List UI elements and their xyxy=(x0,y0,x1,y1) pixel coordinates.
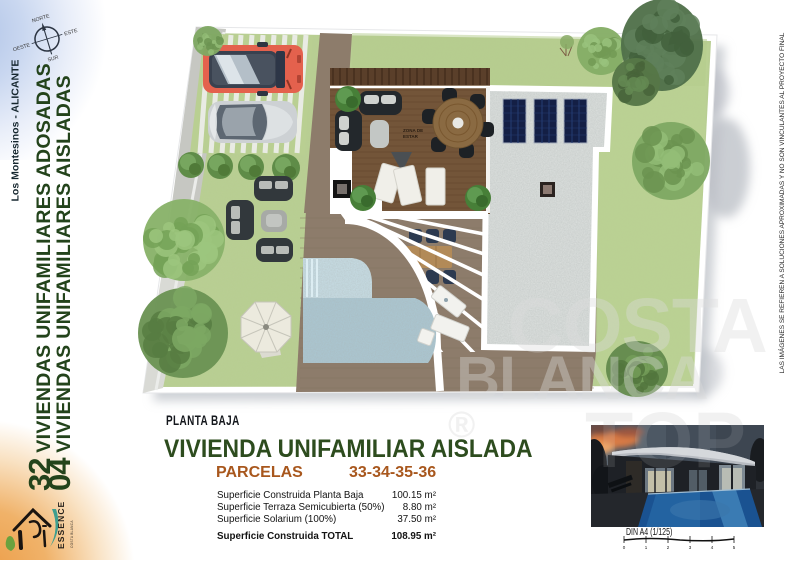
svg-text:ZONA DE: ZONA DE xyxy=(403,128,423,133)
svg-text:0: 0 xyxy=(623,545,626,550)
svg-text:NORTE: NORTE xyxy=(31,13,51,24)
svg-text:1: 1 xyxy=(645,545,648,550)
svg-text:ESSENCE: ESSENCE xyxy=(56,501,66,549)
svg-text:5: 5 xyxy=(733,545,736,550)
svg-text:ESTE: ESTE xyxy=(64,28,79,38)
svg-text:3: 3 xyxy=(689,545,692,550)
svg-text:TOP: TOP xyxy=(585,395,746,484)
svg-text:ESTAR: ESTAR xyxy=(403,134,419,139)
svg-text:2: 2 xyxy=(667,545,670,550)
svg-text:COSTA BLANCA: COSTA BLANCA xyxy=(70,520,74,548)
svg-text:4: 4 xyxy=(711,545,714,550)
